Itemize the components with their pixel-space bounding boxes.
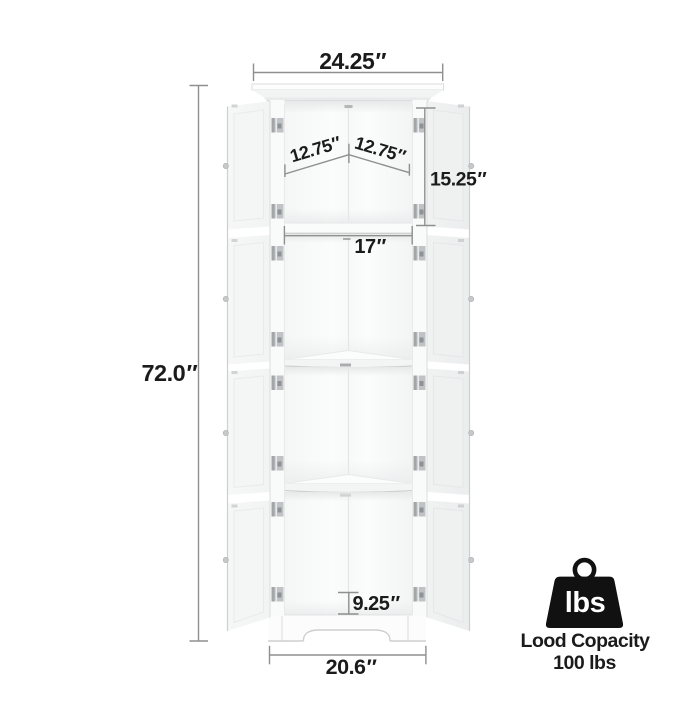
svg-text:9.25″: 9.25″ xyxy=(353,593,401,615)
svg-text:24.25″: 24.25″ xyxy=(319,48,386,74)
svg-text:20.6″: 20.6″ xyxy=(326,655,378,679)
svg-text:17″: 17″ xyxy=(354,236,386,258)
svg-text:15.25″: 15.25″ xyxy=(430,169,487,191)
svg-text:lbs: lbs xyxy=(565,587,605,619)
svg-text:Lood Copacity: Lood Copacity xyxy=(521,630,651,652)
svg-text:100 lbs: 100 lbs xyxy=(553,652,616,674)
svg-text:72.0″: 72.0″ xyxy=(141,360,198,386)
